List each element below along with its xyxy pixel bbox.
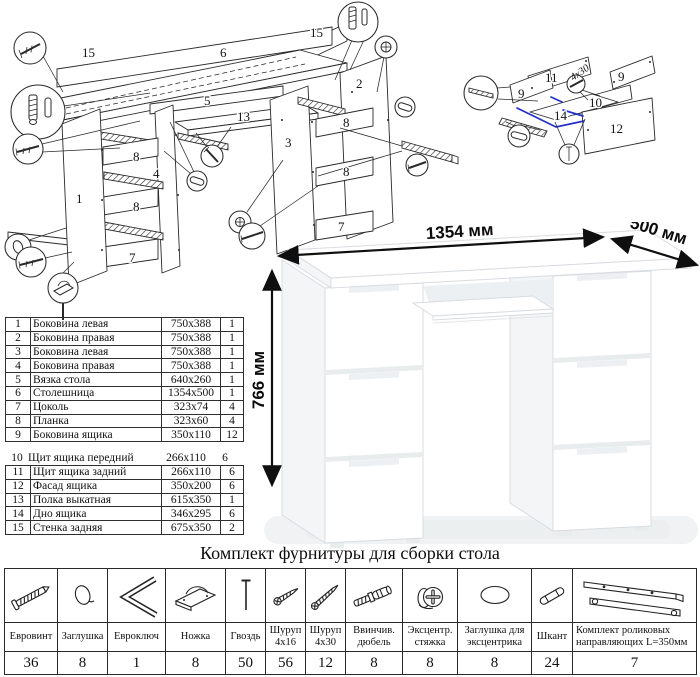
callout-screw-right	[406, 154, 428, 176]
table-row: 7Цоколь323x744	[6, 400, 244, 414]
part-name: Боковина правая	[31, 359, 162, 373]
part-size: 750x388	[162, 345, 221, 359]
table-row: 11Щит ящика задний266x1106	[6, 466, 244, 480]
part-qty: 1	[221, 331, 244, 345]
part-name: Боковина левая	[31, 345, 162, 359]
part-label-tie: 5	[204, 93, 211, 108]
hardware-icons-row	[5, 569, 697, 623]
part-size: 675x350	[162, 521, 221, 535]
callout-cam-top	[375, 36, 397, 58]
drawer-label-front: 10	[589, 95, 602, 110]
part-num: 7	[6, 400, 31, 414]
part-num: 15	[6, 521, 31, 535]
part-size: 266x110	[158, 452, 214, 464]
part-qty: 1	[221, 359, 244, 373]
table-row: 14Дно ящика346x2956	[6, 507, 244, 521]
part-size: 350x110	[162, 428, 221, 442]
callout-drawer-dowel	[508, 125, 530, 147]
part-name: Дно ящика	[31, 507, 162, 521]
parts-table-upper: 1Боковина левая750x3881 2Боковина правая…	[5, 317, 244, 442]
part-name: Цоколь	[31, 400, 162, 414]
part-label-plinth-left: 7	[129, 250, 136, 265]
confirmat-screw-icon	[7, 572, 55, 620]
part-num: 9	[6, 428, 31, 442]
part-label-plank-r2: 8	[343, 164, 350, 179]
parts-table-lower: 11Щит ящика задний266x1106 12Фасад ящика…	[5, 465, 244, 535]
part-num: 12	[6, 479, 31, 493]
part-size: 750x388	[162, 331, 221, 345]
table-row: 9Боковина ящика350x11012	[6, 428, 244, 442]
part-num: 6	[6, 386, 31, 400]
nail-icon	[228, 572, 264, 620]
hardware-item-qty: 56	[266, 652, 306, 675]
part-num: 2	[6, 331, 31, 345]
part-size: 266x110	[162, 466, 221, 480]
hardware-item-label: Эксцентр. стяжка	[403, 623, 458, 652]
hardware-item-qty: 12	[306, 652, 346, 675]
threaded-dowel-icon	[348, 572, 400, 620]
table-row: 15Стенка задняя675x3502	[6, 521, 244, 535]
part-qty: 12	[221, 428, 244, 442]
part-size: 750x388	[162, 359, 221, 373]
part-qty: 6	[221, 507, 244, 521]
assembly-instruction-sheet: 15 15 6 5 13 3 2 1 4 8 8 8 8 7 7	[0, 0, 700, 677]
part-size: 1354x500	[162, 386, 221, 400]
hardware-item-label: Шуруп 4x16	[266, 623, 306, 652]
part-qty: 6	[214, 452, 236, 464]
part-qty: 4	[221, 414, 244, 428]
hardware-qty-row: 36 8 1 8 50 56 12 8 8 8 24 7	[5, 652, 697, 675]
part-size: 350x200	[162, 479, 221, 493]
height-dimension-label: 766 мм	[249, 351, 268, 409]
callout-drawer-rail	[464, 76, 498, 110]
hardware-item-qty: 7	[573, 652, 697, 675]
hardware-item-qty: 8	[458, 652, 532, 675]
hardware-item-label: Шуруп 4x30	[306, 623, 346, 652]
hardware-item-qty: 1	[108, 652, 166, 675]
part-label-desktop: 6	[220, 45, 227, 60]
cam-lock-icon	[405, 572, 455, 620]
table-row: 8Планка323x604	[6, 414, 244, 428]
part-num: 8	[6, 414, 31, 428]
part-name: Фасад ящика	[31, 479, 162, 493]
hardware-item-qty: 8	[58, 652, 108, 675]
hardware-item-label: Ножка	[166, 623, 226, 652]
hardware-item-label: Заглушка	[58, 623, 108, 652]
part-qty: 1	[221, 493, 244, 507]
hardware-item-label: Заглушка для эксцентрика	[458, 623, 532, 652]
hardware-item-label: Евровинт	[5, 623, 58, 652]
part-num: 5	[6, 373, 31, 387]
part-name: Полка выкатная	[31, 493, 162, 507]
table-row: 12Фасад ящика350x2006	[6, 479, 244, 493]
screw-short-icon	[268, 572, 304, 620]
drawer-label-bottom: 14	[554, 108, 568, 123]
part-size: 640x260	[162, 373, 221, 387]
callout-screw	[14, 32, 46, 64]
cam-cap-icon	[461, 572, 529, 620]
drawer-label-facade: 12	[610, 121, 623, 136]
callout-dowel-sleeve	[11, 85, 65, 139]
part-name: Боковина левая	[31, 318, 162, 332]
hardware-item-qty: 8	[346, 652, 403, 675]
part-name: Боковина ящика	[31, 428, 162, 442]
table-row: 13Полка выкатная615x3501	[6, 493, 244, 507]
hardware-item-label: Шкант	[532, 623, 573, 652]
hardware-item-label: Гвоздь	[226, 623, 266, 652]
part-name: Стенка задняя	[31, 521, 162, 535]
foot-icon	[169, 572, 223, 620]
part-label-inner-side-right: 3	[285, 135, 292, 150]
part-label-back-panel-b: 15	[310, 25, 323, 40]
part-qty: 6	[221, 466, 244, 480]
part-name: Боковина правая	[31, 331, 162, 345]
hardware-labels-row: Евровинт Заглушка Евроключ Ножка Гвоздь …	[5, 623, 697, 652]
hardware-item-qty: 36	[5, 652, 58, 675]
part-name: Щит ящика передний	[28, 452, 158, 464]
part-label-inner-side-left: 4	[153, 166, 160, 181]
hardware-item-qty: 50	[226, 652, 266, 675]
callout-foot	[48, 273, 78, 320]
part-qty: 6	[221, 479, 244, 493]
part-num: 4	[6, 359, 31, 373]
table-row-plain: 10 Щит ящика передний 266x110 6	[6, 450, 236, 465]
part-label-plank-l1: 8	[133, 149, 140, 164]
screw-long-icon	[308, 572, 344, 620]
drawer-label-side-right: 9	[618, 69, 625, 84]
drawer-slide-icon	[576, 572, 694, 620]
part-size: 323x74	[162, 400, 221, 414]
part-qty: 1	[221, 345, 244, 359]
part-label-outer-side-left: 1	[76, 191, 83, 206]
part-size: 346x295	[162, 507, 221, 521]
part-label-outer-side-right: 2	[356, 76, 363, 91]
part-name: Щит ящика задний	[31, 466, 162, 480]
part-num: 1	[6, 318, 31, 332]
part-qty: 4	[221, 400, 244, 414]
part-num: 13	[6, 493, 31, 507]
drawer-label-back: 11	[545, 70, 558, 85]
wood-dowel-icon	[533, 572, 571, 620]
part-size: 750x388	[162, 318, 221, 332]
part-label-keyboard-shelf: 13	[237, 109, 250, 124]
callout-confirmat-1	[13, 134, 43, 164]
drawer-label-side-left: 9	[518, 86, 525, 101]
callout-confirmat-2	[16, 247, 46, 277]
hardware-table: Евровинт Заглушка Евроключ Ножка Гвоздь …	[4, 568, 697, 675]
hardware-item-qty: 8	[403, 652, 458, 675]
part-label-plank-l2: 8	[133, 199, 140, 214]
table-row: 6Столешница1354x5001	[6, 386, 244, 400]
part-size: 323x60	[162, 414, 221, 428]
callout-nail	[559, 144, 579, 164]
part-num: 11	[6, 466, 31, 480]
part-qty: 1	[221, 373, 244, 387]
part-num: 10	[6, 452, 28, 464]
part-label-back-panel-a: 15	[82, 45, 95, 60]
hardware-item-label: Евроключ	[108, 623, 166, 652]
hardware-item-label: Ввинчив. дюбель	[346, 623, 403, 652]
exploded-view-drawer: 4x30 11 9 9 10 14 12	[448, 38, 700, 230]
hex-key-icon	[111, 572, 163, 620]
callout-screw-shelf	[201, 145, 223, 167]
table-row: 1Боковина левая750x3881	[6, 318, 244, 332]
hardware-kit-title: Комплект фурнитуры для сборки стола	[0, 543, 700, 564]
table-row: 5Вязка стола640x2601	[6, 373, 244, 387]
hardware-item-label: Комплект роликовых направляющих L=350мм	[573, 623, 697, 652]
hardware-item-qty: 24	[532, 652, 573, 675]
part-qty: 1	[221, 386, 244, 400]
table-row: 3Боковина левая750x3881	[6, 345, 244, 359]
part-num: 14	[6, 507, 31, 521]
callout-dowel-mid	[187, 171, 207, 191]
part-qty: 1	[221, 318, 244, 332]
hardware-item-qty: 8	[166, 652, 226, 675]
part-num: 3	[6, 345, 31, 359]
table-row: 2Боковина правая750x3881	[6, 331, 244, 345]
cap-icon	[61, 572, 105, 620]
callout-dowel-sleeve-top	[338, 2, 378, 42]
part-name: Вязка стола	[31, 373, 162, 387]
part-name: Столешница	[31, 386, 162, 400]
part-name: Планка	[31, 414, 162, 428]
part-label-plank-r1: 8	[343, 115, 350, 130]
callout-dowel-right	[395, 97, 415, 117]
part-size: 615x350	[162, 493, 221, 507]
desk-3d-render: 1354 мм 500 мм 766 мм	[248, 222, 700, 552]
part-qty: 2	[221, 521, 244, 535]
table-row: 4Боковина правая750x3881	[6, 359, 244, 373]
